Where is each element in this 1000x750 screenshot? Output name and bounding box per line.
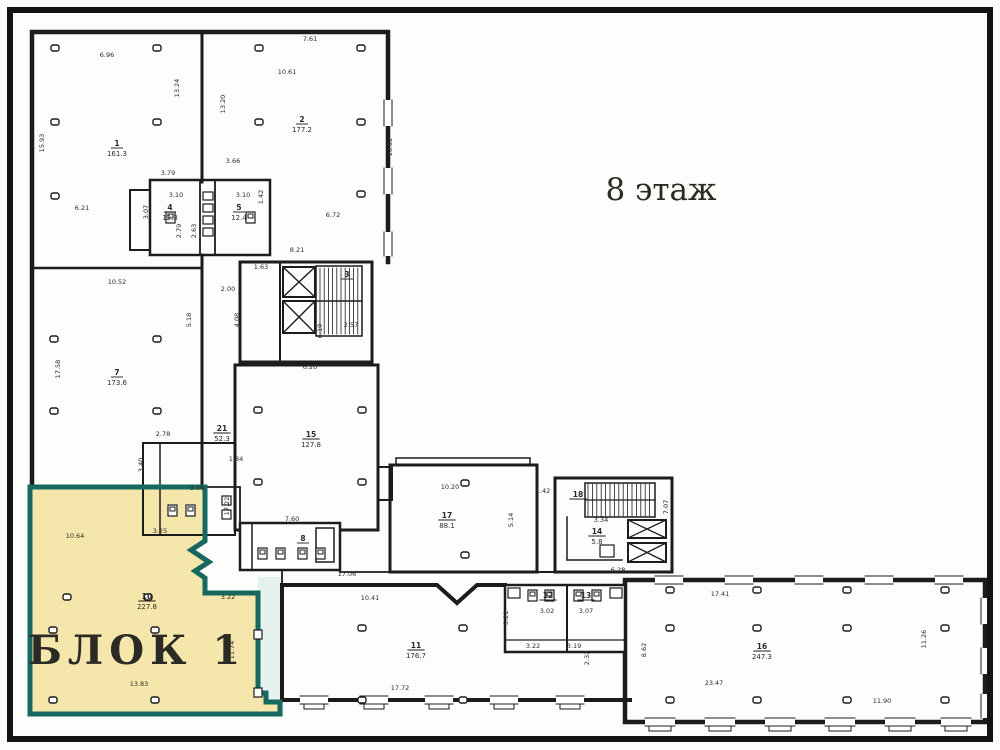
dim-label: 17.41: [711, 590, 730, 598]
column-marker: [50, 408, 58, 414]
column-marker: [51, 45, 59, 51]
room-area: 88.1: [439, 522, 455, 530]
sink-fixture: [203, 192, 213, 200]
exterior-wall-upper: [32, 32, 388, 487]
border-window-marker: [254, 688, 262, 697]
column-marker: [941, 587, 949, 593]
dim-label: 10.41: [361, 594, 380, 602]
dim-label: 17.06: [338, 570, 357, 578]
dim-label: 5.18: [185, 313, 193, 327]
dim-label: 6.28: [611, 566, 625, 574]
sink-fixture: [610, 588, 622, 598]
column-marker: [153, 45, 161, 51]
room11-top-wall: [282, 585, 505, 603]
dim-label: 3.34: [594, 516, 608, 524]
window: [935, 576, 963, 584]
dim-label: 11.90: [873, 697, 892, 705]
window: [384, 232, 392, 256]
room-number: 12: [543, 591, 553, 600]
toilet-fixture: [278, 550, 283, 554]
column-marker: [459, 697, 467, 703]
dim-label: 3.22: [221, 593, 235, 601]
dim-label: 6.72: [326, 211, 340, 219]
column-marker: [666, 587, 674, 593]
column-marker: [941, 697, 949, 703]
column-marker: [255, 45, 263, 51]
dim-label: 10.52: [108, 278, 127, 286]
window: [765, 718, 795, 726]
elevator-x: [628, 520, 666, 538]
window: [795, 576, 823, 584]
column-marker: [153, 336, 161, 342]
window: [885, 718, 915, 726]
dim-label: 3.06: [190, 484, 204, 492]
dim-label: 5.14: [507, 513, 515, 527]
column-marker: [255, 119, 263, 125]
window: [384, 168, 392, 194]
room-area: 52.3: [214, 435, 230, 443]
toilet-fixture: [594, 592, 599, 596]
toilet-fixture: [260, 550, 265, 554]
dim-label: 17.22: [223, 497, 231, 516]
dim-label: 8.62: [640, 643, 648, 657]
column-marker: [843, 587, 851, 593]
room-area: 227.8: [137, 603, 157, 611]
wc-mid-wall: [240, 523, 340, 570]
room-number: 16: [757, 642, 767, 651]
window-sill: [304, 704, 324, 709]
room-area: 12.3: [162, 214, 178, 222]
dim-label: 3.07: [142, 205, 150, 219]
column-marker: [461, 552, 469, 558]
dim-label: 10.64: [66, 532, 85, 540]
dim-label: 15.93: [38, 134, 46, 153]
floor-plan-svg: 7.616.9610.6113.2413.2015.9316.023.793.6…: [0, 0, 1000, 750]
dim-label: 3.07: [579, 607, 593, 615]
column-marker: [358, 407, 366, 413]
column-marker: [461, 480, 469, 486]
room-area: 161.3: [107, 150, 127, 158]
column-marker: [357, 119, 365, 125]
dim-label: 6.20: [303, 363, 317, 371]
window-sill: [889, 726, 911, 731]
dim-label: 7.61: [303, 35, 317, 43]
dim-label: 1.42: [536, 487, 550, 495]
column-marker: [843, 697, 851, 703]
room-number: 4: [167, 203, 172, 212]
room-number: 15: [306, 430, 316, 439]
window: [941, 718, 971, 726]
dim-label: 6.96: [100, 51, 114, 59]
room-area: 127.8: [301, 441, 321, 449]
column-marker: [358, 479, 366, 485]
floor-title: 8 этаж: [605, 172, 717, 208]
dim-label: 3.79: [161, 169, 175, 177]
dim-label: 2.57: [344, 321, 358, 329]
sink-fixture: [508, 588, 520, 598]
dim-label: 8.21: [290, 246, 304, 254]
dim-label: 13.24: [173, 79, 181, 98]
window: [725, 576, 753, 584]
room-area: 247.3: [752, 653, 772, 661]
dim-label: 4.08: [233, 313, 241, 327]
window-sill: [494, 704, 514, 709]
room-area: 177.2: [292, 126, 312, 134]
elevator-x: [283, 267, 315, 297]
dim-label: 7.07: [662, 500, 670, 514]
dim-label: 2.63: [190, 224, 198, 238]
dim-label: 7.60: [285, 515, 299, 523]
room-number: 18: [573, 490, 583, 499]
room-number: 5: [236, 203, 241, 212]
room-number: 3: [344, 270, 349, 279]
window: [825, 718, 855, 726]
column-marker: [753, 587, 761, 593]
dim-label: 3.10: [236, 191, 250, 199]
window-sill: [945, 726, 967, 731]
floor-plan-page: 7.616.9610.6113.2413.2015.9316.023.793.6…: [0, 0, 1000, 750]
elevator-x: [628, 543, 666, 562]
column-marker: [666, 697, 674, 703]
column-marker: [153, 119, 161, 125]
column-marker: [753, 625, 761, 631]
room-area: 5.8: [591, 538, 602, 546]
room-number: 17: [442, 511, 452, 520]
window: [705, 718, 735, 726]
dim-label: 2.79: [175, 224, 183, 238]
core1-wall: [240, 262, 372, 362]
dim-label: 6.21: [75, 204, 89, 212]
room-number: 13: [581, 591, 591, 600]
window: [645, 718, 675, 726]
sink-fixture: [600, 545, 614, 557]
toilet-fixture: [170, 507, 175, 511]
room-area: 176.7: [406, 652, 426, 660]
window: [655, 576, 683, 584]
dim-label: 3.21: [502, 611, 510, 625]
dim-label: 13.20: [219, 95, 227, 114]
toilet-fixture: [188, 507, 193, 511]
toilet-fixture: [530, 592, 535, 596]
column-marker: [358, 625, 366, 631]
window: [556, 696, 584, 704]
window-sill: [709, 726, 731, 731]
room-number: 7: [114, 368, 119, 377]
column-marker: [51, 193, 59, 199]
dim-label: 11.26: [920, 630, 928, 649]
column-marker: [941, 625, 949, 631]
window-sill: [560, 704, 580, 709]
dim-label: 3.66: [226, 157, 240, 165]
room-number: 11: [411, 641, 421, 650]
wing-wall: [625, 580, 985, 722]
block1-highlight-fill: [30, 487, 284, 715]
sink-fixture: [203, 216, 213, 224]
toilet-fixture: [300, 550, 305, 554]
column-marker: [358, 697, 366, 703]
dim-label: 3.19: [567, 642, 581, 650]
column-marker: [357, 191, 365, 197]
elevator-x: [283, 301, 315, 333]
dim-label: 3.25: [153, 527, 167, 535]
room-number: 21: [217, 424, 227, 433]
wc-bottom-wall: [505, 585, 625, 652]
column-marker: [153, 408, 161, 414]
column-marker: [50, 336, 58, 342]
room-area: 12.4: [231, 214, 247, 222]
room-number: 10: [142, 592, 152, 601]
dim-label: 3.02: [540, 607, 554, 615]
window: [865, 576, 893, 584]
window-sill: [769, 726, 791, 731]
window: [490, 696, 518, 704]
room-number: 14: [592, 527, 602, 536]
column-marker: [49, 697, 57, 703]
toilet-fixture: [318, 550, 323, 554]
sink-fixture: [203, 228, 213, 236]
sink-fixture: [203, 204, 213, 212]
dim-label: 2.78: [156, 430, 170, 438]
dim-label: 1.63: [254, 263, 268, 271]
room-number: 2: [299, 115, 304, 124]
dim-label: 1.84: [229, 455, 243, 463]
room-number: 8: [300, 534, 305, 543]
column-marker: [254, 479, 262, 485]
column-marker: [254, 407, 262, 413]
border-window-marker: [254, 630, 262, 639]
column-marker: [843, 625, 851, 631]
dim-label: 10.20: [441, 483, 460, 491]
column-marker: [63, 594, 71, 600]
column-marker: [666, 625, 674, 631]
dim-label: 2.32: [583, 651, 591, 665]
column-marker: [753, 697, 761, 703]
dim-label: 3.22: [526, 642, 540, 650]
window: [384, 100, 392, 126]
window-sill: [649, 726, 671, 731]
dim-label: 3.40: [137, 458, 145, 472]
column-marker: [51, 119, 59, 125]
window: [425, 696, 453, 704]
column-marker: [151, 697, 159, 703]
window: [300, 696, 328, 704]
toilet-fixture: [248, 214, 253, 218]
window-sill: [364, 704, 384, 709]
dim-label: 16.02: [386, 138, 394, 157]
dim-label: 1.42: [257, 190, 265, 204]
dim-label: 17.58: [54, 360, 62, 379]
dim-label: 10.61: [278, 68, 297, 76]
block1-label: БЛОК 1: [28, 627, 247, 674]
dim-label: 6.10: [316, 324, 324, 338]
window-sill: [829, 726, 851, 731]
dim-label: 2.00: [221, 285, 235, 293]
room-area: 173.6: [107, 379, 128, 387]
dim-label: 3.10: [169, 191, 183, 199]
column-marker: [357, 45, 365, 51]
column-marker: [459, 625, 467, 631]
dim-label: 13.83: [130, 680, 149, 688]
window-sill: [429, 704, 449, 709]
dim-label: 17.72: [391, 684, 410, 692]
dim-label: 23.47: [705, 679, 724, 687]
room-number: 1: [114, 139, 119, 148]
